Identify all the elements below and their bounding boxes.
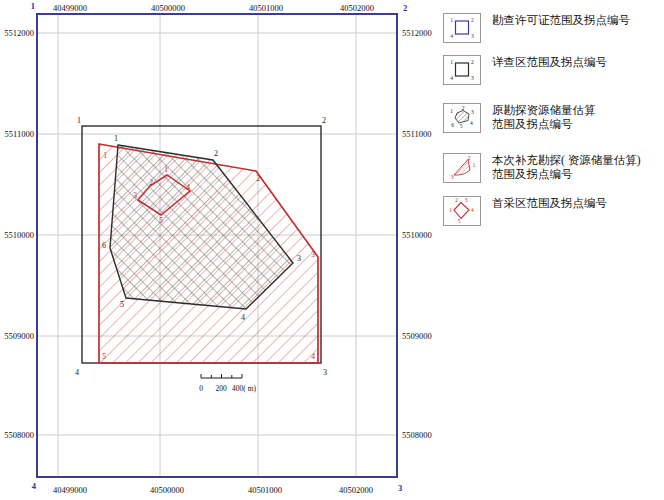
exploration-legend-icon: 1 2 3 4 5 6 [443, 103, 481, 133]
exploration-corner-label: 6 [102, 241, 106, 250]
y-axis-label-left: 5509000 [4, 331, 34, 341]
legend-label-line: 本次补充勘探( 资源储量估算) [492, 153, 641, 167]
survey-corner-label: 1 [77, 116, 81, 125]
x-axis-label-bottom: 40500000 [150, 485, 184, 495]
survey-corner-label: 2 [322, 116, 326, 125]
x-axis-label-top: 40501000 [249, 3, 283, 13]
scale-bar [201, 374, 242, 378]
legend-digit: 4 [471, 207, 474, 213]
legend-digit: 5 [460, 123, 463, 129]
legend-digit: 5 [458, 218, 461, 224]
supplement-corner-label: 4 [311, 352, 315, 361]
legend-digit: 3 [471, 109, 474, 115]
scale-label-0: 0 [199, 384, 203, 393]
y-axis-label-left: 5511000 [5, 129, 34, 139]
x-axis-label-top: 40500000 [151, 3, 185, 13]
legend-digit: 6 [451, 122, 454, 128]
survey-legend-icon: 1 2 3 4 [443, 55, 481, 85]
legend-digit: 1 [473, 162, 476, 168]
permit-legend-icon: 1 2 3 4 [443, 13, 481, 43]
survey-corner-label: 4 [75, 368, 79, 377]
x-axis-label-bottom: 40502000 [339, 485, 373, 495]
first-mining-corner-label: 1 [164, 165, 168, 174]
y-axis-label-left: 5510000 [4, 230, 34, 240]
y-axis-label-right: 5510000 [402, 230, 432, 240]
y-axis-label-right: 5508000 [402, 430, 432, 440]
legend-digit: 1 [450, 17, 453, 23]
supplement-corner-label: 5 [102, 352, 106, 361]
legend-label-line: 范围及拐点编号 [492, 167, 641, 181]
legend-label-line: 范围及拐点编号 [492, 117, 596, 131]
x-axis-label-top: 40499000 [53, 3, 87, 13]
legend-digit: 1 [449, 207, 452, 213]
first-mining-corner-label: 4 [186, 183, 190, 192]
legend-item-exploration: 1 2 3 4 5 6 原勘探资源储量估算 范围及拐点编号 [443, 103, 596, 133]
y-axis-label-left: 5512000 [4, 28, 34, 38]
legend: 1 2 3 4 勘查许可证范围及拐点编号 1 2 3 4 详查区范围及拐点编号 … [440, 0, 664, 500]
legend-digit: 4 [450, 33, 453, 39]
permit-corner-label: 4 [32, 481, 37, 491]
legend-digit: 4 [470, 120, 473, 126]
original-exploration-polygon [110, 145, 293, 309]
exploration-corner-label: 1 [114, 134, 118, 143]
legend-label: 首采区范围及拐点编号 [492, 196, 607, 210]
supplement-corner-label: 1 [103, 151, 107, 160]
first-mining-legend-icon: 2 3 4 5 1 [443, 196, 481, 226]
legend-digit: 2 [455, 197, 458, 203]
legend-label: 详查区范围及拐点编号 [492, 55, 607, 69]
map-svg: 0 200 400( m) 40499000 40500000 40501000… [0, 0, 436, 500]
legend-digit: 1 [450, 59, 453, 65]
permit-corner-label: 3 [398, 483, 402, 493]
permit-corner-label: 1 [31, 1, 35, 11]
legend-digit: 3 [451, 174, 454, 180]
legend-digit: 2 [468, 155, 471, 161]
exploration-corner-label: 2 [214, 149, 218, 158]
legend-digit: 2 [471, 17, 474, 23]
legend-item-first-mining: 2 3 4 5 1 首采区范围及拐点编号 [443, 196, 607, 226]
legend-label: 勘查许可证范围及拐点编号 [492, 13, 630, 27]
y-axis-label-right: 5512000 [402, 28, 432, 38]
legend-digit: 3 [471, 33, 474, 39]
scale-label-200: 200 [215, 384, 227, 393]
y-axis-label-left: 5508000 [4, 430, 34, 440]
first-mining-corner-label: 3 [133, 191, 137, 200]
legend-digit: 4 [450, 75, 453, 81]
exploration-corner-label: 3 [297, 254, 301, 263]
legend-digit: 3 [465, 197, 468, 203]
first-mining-corner-label: 2 [149, 178, 153, 187]
legend-digit: 1 [450, 108, 453, 114]
x-axis-label-top: 40502000 [340, 3, 374, 13]
scale-label-400m: 400( m) [232, 384, 256, 393]
permit-corner-label: 2 [403, 3, 407, 13]
supplement-corner-label: 2 [256, 174, 260, 183]
x-axis-label-bottom: 40501000 [248, 485, 282, 495]
legend-digit: 2 [471, 59, 474, 65]
y-axis-label-right: 5511000 [402, 129, 431, 139]
exploration-corner-label: 4 [241, 313, 245, 322]
legend-label-line: 原勘探资源储量估算 [492, 103, 596, 117]
exploration-corner-label: 5 [120, 300, 124, 309]
first-mining-corner-label: 5 [159, 216, 163, 225]
legend-digit: 2 [462, 105, 465, 111]
legend-digit: 3 [471, 75, 474, 81]
exploration-map-page: 0 200 400( m) 40499000 40500000 40501000… [0, 0, 664, 500]
x-axis-label-bottom: 40499000 [53, 485, 87, 495]
supplement-legend-icon: 2 1 3 [443, 153, 481, 183]
legend-item-survey: 1 2 3 4 详查区范围及拐点编号 [443, 55, 607, 85]
legend-item-supplement: 2 1 3 本次补充勘探( 资源储量估算) 范围及拐点编号 [443, 153, 641, 183]
legend-label: 本次补充勘探( 资源储量估算) 范围及拐点编号 [492, 153, 641, 181]
supplement-corner-label: 3 [311, 250, 315, 259]
legend-item-permit: 1 2 3 4 勘查许可证范围及拐点编号 [443, 13, 630, 43]
y-axis-label-right: 5509000 [402, 331, 432, 341]
legend-label: 原勘探资源储量估算 范围及拐点编号 [492, 103, 596, 131]
survey-corner-label: 3 [323, 368, 327, 377]
